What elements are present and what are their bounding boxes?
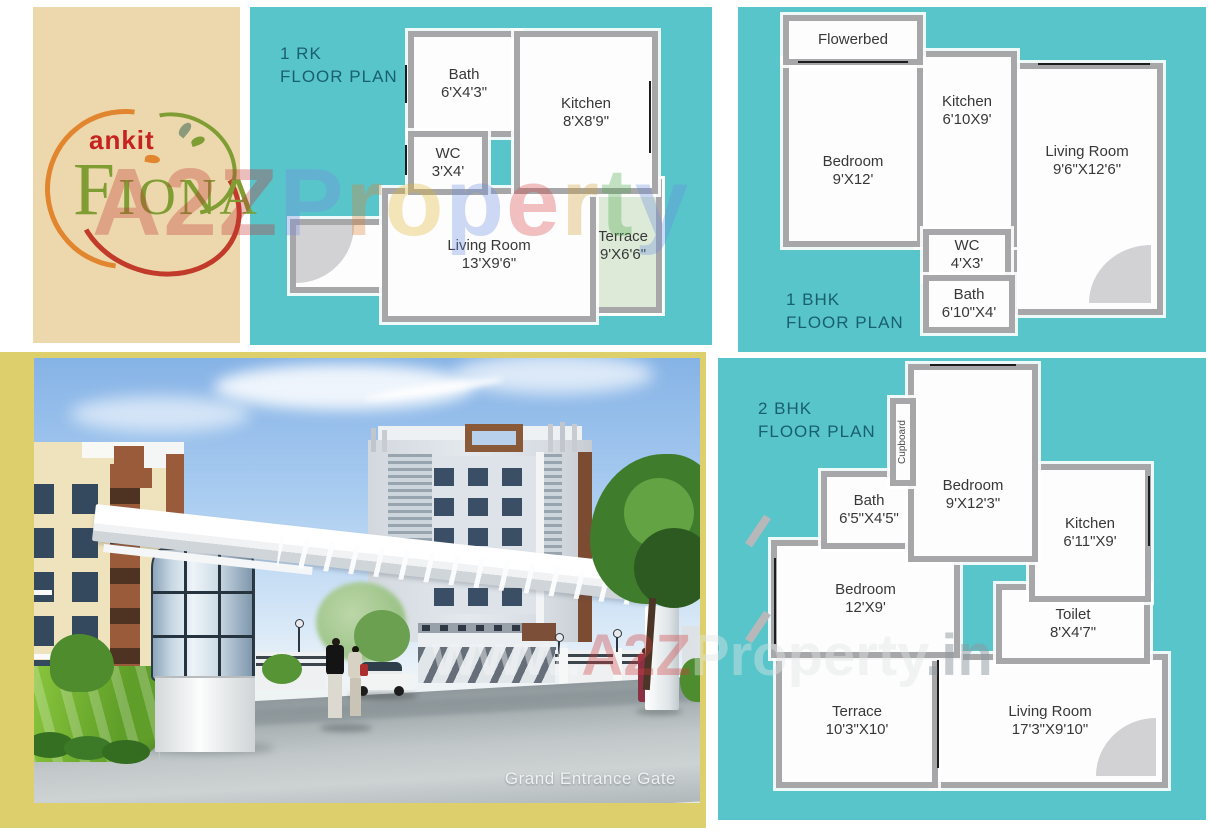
lamp-post <box>558 640 560 654</box>
plan-title-1bhk: 1 BHK FLOOR PLAN <box>786 289 904 335</box>
photo-frame: Grand Entrance Gate <box>0 352 706 828</box>
room-living: Living Room9'6"X12'6" <box>1011 63 1163 315</box>
gate-house-zigzag <box>418 647 556 683</box>
plan-panel-1bhk: Living Room9'6"X12'6" Kitchen6'10X9' Bed… <box>738 7 1206 352</box>
gate-house-brown <box>522 623 556 641</box>
room-cupboard: Cupboard <box>890 398 916 486</box>
plan-title-line1: 1 RK <box>280 43 398 66</box>
louver-strip <box>544 454 562 570</box>
logo-panel: ankit FIONA <box>33 7 240 343</box>
door-arc <box>296 225 354 283</box>
room-kitchen: Kitchen6'11"X9' <box>1029 464 1151 602</box>
building-tall-white-band <box>536 452 544 642</box>
wall-rails <box>555 654 647 668</box>
roof-fin <box>572 424 577 452</box>
bag <box>360 664 368 676</box>
room-living: Living Room17'3"X9'10" <box>932 654 1168 788</box>
door-arc <box>1096 718 1156 776</box>
plan-title-1rk: 1 RK FLOOR PLAN <box>280 43 398 89</box>
plan-title-line2: FLOOR PLAN <box>786 312 904 335</box>
balcony-rail <box>34 590 52 595</box>
bush <box>262 654 302 684</box>
entrance-gate-photo: Grand Entrance Gate <box>34 358 700 803</box>
window-line <box>649 81 651 153</box>
roof-fin <box>560 422 565 452</box>
photo-caption: Grand Entrance Gate <box>505 769 676 789</box>
building-left-brown-stripe <box>110 464 140 678</box>
room-bedroom1: Bedroom9'X12'3" <box>908 364 1038 562</box>
room-entry <box>290 219 388 293</box>
door-line <box>405 145 407 175</box>
hedge <box>102 740 150 764</box>
plan-panel-2bhk: 2 BHK FLOOR PLAN Living Room17'3"X9'10" … <box>718 358 1206 820</box>
room-wc: WC3'X4' <box>408 131 488 195</box>
room-living: Living Room13'X9'6" <box>382 188 596 322</box>
person-shadow <box>320 724 372 732</box>
door-line <box>405 65 407 103</box>
person-torso <box>326 645 344 675</box>
lamp-post <box>616 636 618 652</box>
column-pedestal <box>155 676 255 752</box>
brand-project: FIONA <box>73 147 260 233</box>
window-line <box>930 364 1016 366</box>
window-line <box>798 61 908 63</box>
room-terrace-fill: Terrace9'X6'6" <box>590 179 662 313</box>
lamp-post <box>298 626 300 652</box>
room-bath: Bath6'X4'3" <box>408 31 520 137</box>
door-leaf <box>745 515 771 548</box>
person-legs <box>328 674 342 718</box>
window-line <box>937 660 939 768</box>
plan-panel-1rk: 1 RK FLOOR PLAN Terrace9'X6'6" Terrace9'… <box>250 7 712 345</box>
room-kitchen: Kitchen6'10X9' <box>917 51 1017 247</box>
room-flowerbed: Flowerbed <box>783 15 923 65</box>
plan-title-line1: 1 BHK <box>786 289 904 312</box>
plan-title-line1: 2 BHK <box>758 398 876 421</box>
gate-house <box>418 623 556 683</box>
plan-title-2bhk: 2 BHK FLOOR PLAN <box>758 398 876 444</box>
cloud <box>70 396 250 432</box>
lamp-head <box>295 619 304 628</box>
window-line <box>774 558 776 644</box>
lamp-head <box>613 629 622 638</box>
glass-column <box>151 548 255 682</box>
person-legs <box>350 678 361 716</box>
building-tall-roof-frame <box>465 424 523 452</box>
room-bedroom: Bedroom9'X12' <box>783 59 923 247</box>
roof-fin <box>382 430 387 452</box>
door-leaf <box>745 611 771 644</box>
room-terrace: Terrace10'3"X10' <box>776 654 938 788</box>
plan-title-line2: FLOOR PLAN <box>280 66 398 89</box>
roof-fin <box>371 428 376 452</box>
room-wc: WC4'X3' <box>923 229 1011 281</box>
roof-fin <box>548 424 553 452</box>
door-arc <box>1089 245 1151 303</box>
room-bath: Bath6'10"X4' <box>923 275 1015 333</box>
lamp-head <box>555 633 564 642</box>
plan-title-line2: FLOOR PLAN <box>758 421 876 444</box>
pedestrian-couple <box>318 638 372 734</box>
car-wheel <box>394 686 404 696</box>
window-line <box>1148 476 1150 546</box>
brochure-canvas: ankit FIONA 1 RK FLOOR PLAN Terrace9'X6'… <box>0 0 1210 831</box>
window-line <box>1038 63 1150 65</box>
room-kitchen: Kitchen8'X8'9" <box>514 31 658 194</box>
